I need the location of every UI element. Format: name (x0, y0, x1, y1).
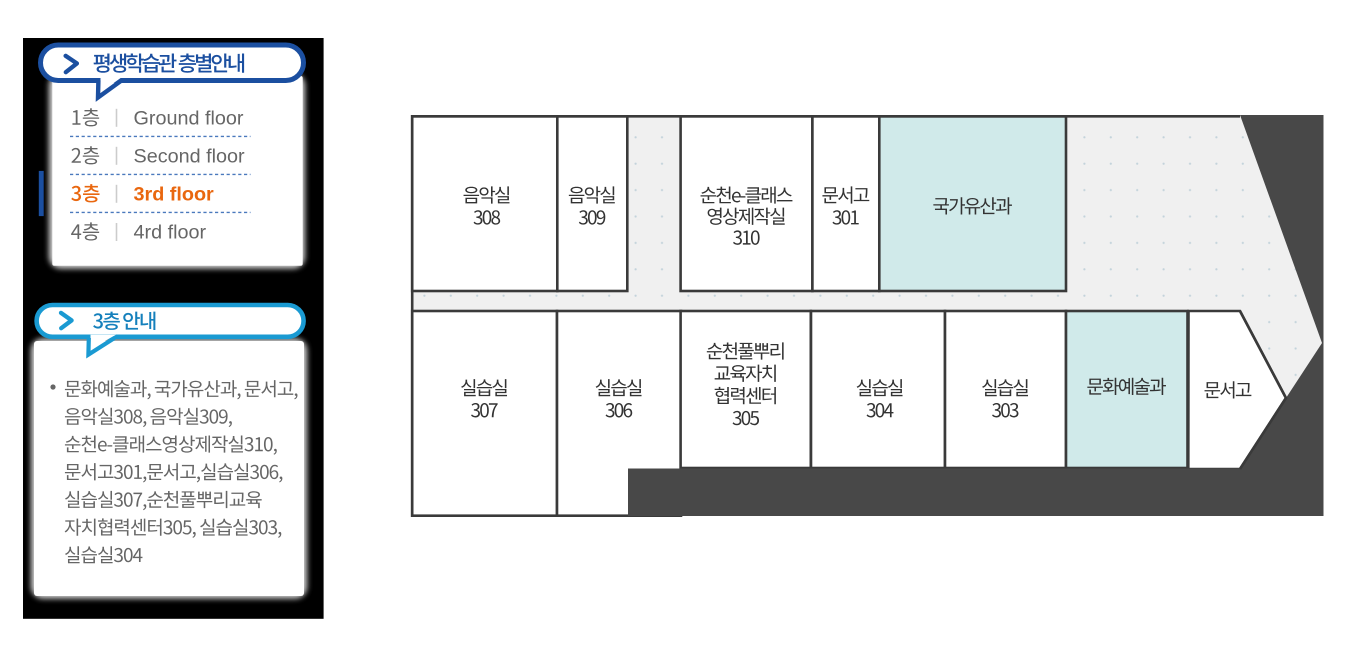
svg-text:Second floor: Second floor (134, 145, 245, 167)
svg-text:Ground floor: Ground floor (134, 107, 244, 129)
svg-text:3rd floor: 3rd floor (134, 183, 215, 205)
svg-text:4rd floor: 4rd floor (134, 222, 207, 244)
